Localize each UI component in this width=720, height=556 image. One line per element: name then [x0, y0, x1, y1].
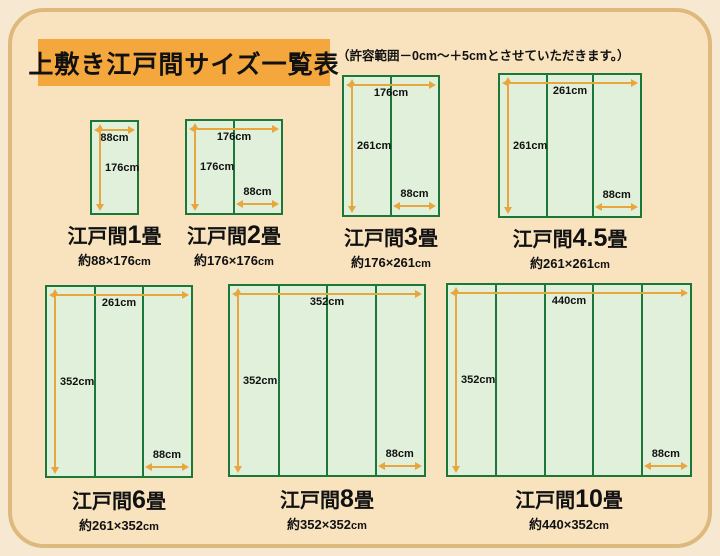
arrow-line	[350, 84, 432, 86]
diagram-size-value: 約261×261	[530, 256, 594, 271]
arrow-head-right-icon	[182, 463, 189, 471]
diagram-size-unit: cm	[351, 520, 367, 532]
diagram-size-value: 約176×176	[194, 253, 258, 268]
height-dimension-label: 176cm	[105, 162, 139, 174]
arrow-line	[507, 81, 509, 210]
tatami-diagram-2jo: 176cm176cm88cm	[185, 119, 283, 215]
arrow-line	[237, 292, 239, 469]
tatami-mat: 352cm352cm88cm	[228, 284, 426, 477]
diagram-name-number: 1	[128, 221, 142, 249]
mat-divider	[544, 285, 546, 475]
strip-dimension-label: 88cm	[236, 186, 279, 198]
height-dimension-label: 176cm	[200, 161, 234, 173]
arrow-line	[454, 292, 684, 294]
diagram-name: 江戸間6畳	[72, 487, 166, 513]
size-chart-page: 上敷き江戸間サイズ一覧表 （許容範囲－0cm～＋5cmとさせていただきます。） …	[0, 0, 720, 556]
diagram-name-suffix: 畳	[603, 490, 623, 512]
diagram-name-prefix: 江戸間	[515, 490, 575, 512]
tatami-diagram-4-5jo: 261cm261cm88cm	[498, 73, 642, 218]
diagram-size: 約88×176cm	[68, 250, 162, 269]
strip-dimension-label: 88cm	[145, 449, 189, 461]
tatami-mat: 176cm176cm88cm	[185, 119, 283, 215]
width-dimension-label: 352cm	[230, 296, 424, 308]
diagram-size-unit: cm	[594, 259, 610, 271]
diagram-size-unit: cm	[593, 520, 609, 532]
diagram-name: 江戸間8畳	[280, 486, 374, 512]
diagram-name-prefix: 江戸間	[513, 229, 573, 251]
diagram-caption: 江戸間6畳約261×352cm	[72, 487, 166, 534]
arrow-line	[599, 206, 634, 208]
height-arrow	[348, 79, 356, 213]
tatami-mat: 176cm261cm88cm	[342, 75, 440, 217]
arrow-line	[648, 465, 684, 467]
diagram-name-suffix: 畳	[607, 229, 627, 251]
diagram-name-number: 8	[340, 485, 354, 513]
width-dimension-label: 440cm	[448, 295, 690, 307]
arrow-head-up-icon	[234, 288, 242, 295]
arrow-line	[382, 465, 419, 467]
diagram-size: 約440×352cm	[515, 514, 623, 533]
arrow-head-left-icon	[595, 203, 602, 211]
tatami-diagram-1jo: 88cm176cm	[90, 120, 139, 215]
diagram-name: 江戸間10畳	[515, 486, 623, 512]
arrow-head-right-icon	[429, 202, 436, 210]
diagram-name-prefix: 江戸間	[187, 226, 247, 248]
tatami-diagram-6jo: 261cm352cm88cm	[45, 285, 193, 478]
arrow-head-up-icon	[96, 124, 104, 131]
arrow-head-right-icon	[681, 462, 688, 470]
height-dimension-label: 261cm	[513, 140, 547, 152]
diagram-name: 江戸間2畳	[187, 222, 281, 248]
diagram-caption: 江戸間10畳約440×352cm	[515, 486, 623, 533]
tatami-diagram-10jo: 440cm352cm88cm	[446, 283, 692, 477]
arrow-head-left-icon	[236, 200, 243, 208]
arrow-head-down-icon	[452, 466, 460, 473]
mat-divider	[326, 286, 328, 475]
arrow-head-right-icon	[272, 200, 279, 208]
diagram-caption: 江戸間8畳約352×352cm	[280, 486, 374, 533]
arrow-head-up-icon	[348, 79, 356, 86]
arrow-head-down-icon	[504, 207, 512, 214]
mat-divider	[142, 287, 144, 476]
diagram-name-prefix: 江戸間	[68, 226, 128, 248]
height-arrow	[51, 289, 59, 474]
strip-width-arrow	[393, 202, 436, 210]
arrow-line	[351, 83, 353, 209]
diagram-name: 江戸間3畳	[344, 224, 438, 250]
arrow-line	[455, 291, 457, 469]
arrow-head-left-icon	[393, 202, 400, 210]
mat-divider	[495, 285, 497, 475]
diagram-name-number: 2	[247, 221, 261, 249]
diagram-size-value: 約352×352	[287, 517, 351, 532]
arrow-head-down-icon	[51, 467, 59, 474]
height-dimension-label: 352cm	[461, 374, 495, 386]
diagram-caption: 江戸間2畳約176×176cm	[187, 222, 281, 269]
diagram-size-unit: cm	[143, 521, 159, 533]
arrow-head-down-icon	[234, 466, 242, 473]
height-dimension-label: 352cm	[60, 376, 94, 388]
arrow-head-down-icon	[191, 204, 199, 211]
mat-divider	[641, 285, 643, 475]
diagram-size-value: 約261×352	[79, 518, 143, 533]
tatami-diagram-8jo: 352cm352cm88cm	[228, 284, 426, 477]
arrow-line	[240, 203, 275, 205]
diagram-size-value: 約440×352	[529, 517, 593, 532]
diagram-size: 約261×352cm	[72, 515, 166, 534]
diagram-size-value: 約176×261	[351, 255, 415, 270]
arrow-line	[194, 127, 196, 207]
strip-dimension-label: 88cm	[393, 188, 436, 200]
height-arrow	[96, 124, 104, 211]
height-arrow	[452, 287, 460, 473]
diagram-name-prefix: 江戸間	[280, 490, 340, 512]
diagram-name-suffix: 畳	[354, 490, 374, 512]
arrow-line	[99, 128, 101, 207]
tolerance-note: （許容範囲－0cm～＋5cmとさせていただきます。）	[337, 45, 630, 64]
diagram-caption: 江戸間4.5畳約261×261cm	[513, 225, 628, 272]
mat-divider	[375, 286, 377, 475]
arrow-head-up-icon	[504, 77, 512, 84]
arrow-line	[236, 293, 418, 295]
arrow-head-left-icon	[644, 462, 651, 470]
arrow-head-down-icon	[348, 206, 356, 213]
diagram-name-prefix: 江戸間	[344, 228, 404, 250]
diagram-name-number: 10	[575, 485, 603, 513]
mat-divider	[592, 285, 594, 475]
strip-dimension-label: 88cm	[378, 448, 423, 460]
strip-dimension-label: 88cm	[595, 189, 638, 201]
diagram-name-suffix: 畳	[418, 228, 438, 250]
arrow-line	[193, 128, 275, 130]
diagram-name-number: 4.5	[573, 224, 608, 252]
diagram-caption: 江戸間1畳約88×176cm	[68, 222, 162, 269]
diagram-size: 約176×261cm	[344, 252, 438, 271]
width-dimension-label: 261cm	[500, 85, 640, 97]
diagram-caption: 江戸間3畳約176×261cm	[344, 224, 438, 271]
diagram-name-prefix: 江戸間	[72, 491, 132, 513]
width-dimension-label: 176cm	[344, 87, 438, 99]
tatami-mat: 440cm352cm88cm	[446, 283, 692, 477]
width-dimension-label: 261cm	[47, 297, 191, 309]
arrow-head-right-icon	[631, 203, 638, 211]
arrow-head-left-icon	[145, 463, 152, 471]
tatami-mat: 261cm261cm88cm	[498, 73, 642, 218]
diagram-name-suffix: 畳	[146, 491, 166, 513]
diagram-name-suffix: 畳	[261, 226, 281, 248]
diagram-size-unit: cm	[415, 258, 431, 270]
tatami-mat: 261cm352cm88cm	[45, 285, 193, 478]
diagram-size: 約176×176cm	[187, 250, 281, 269]
diagram-name-number: 6	[132, 486, 146, 514]
arrow-line	[54, 293, 56, 470]
diagram-size-unit: cm	[135, 256, 151, 268]
arrow-head-left-icon	[378, 462, 385, 470]
diagram-name-number: 3	[404, 223, 418, 251]
height-arrow	[191, 123, 199, 211]
strip-width-arrow	[145, 463, 189, 471]
arrow-head-up-icon	[51, 289, 59, 296]
strip-width-arrow	[236, 200, 279, 208]
height-arrow	[504, 77, 512, 214]
diagram-name: 江戸間4.5畳	[513, 225, 628, 251]
arrow-line	[149, 466, 185, 468]
arrow-head-up-icon	[452, 287, 460, 294]
arrow-head-down-icon	[96, 204, 104, 211]
arrow-line	[397, 205, 432, 207]
height-dimension-label: 261cm	[357, 140, 391, 152]
height-dimension-label: 352cm	[243, 375, 277, 387]
tatami-mat: 88cm176cm	[90, 120, 139, 215]
page-title: 上敷き江戸間サイズ一覧表	[38, 39, 330, 86]
diagram-name: 江戸間1畳	[68, 222, 162, 248]
arrow-head-up-icon	[191, 123, 199, 130]
arrow-head-right-icon	[415, 462, 422, 470]
diagram-size: 約352×352cm	[280, 514, 374, 533]
tatami-diagram-3jo: 176cm261cm88cm	[342, 75, 440, 217]
diagram-size-unit: cm	[258, 256, 274, 268]
diagram-size-value: 約88×176	[78, 253, 135, 268]
strip-width-arrow	[595, 203, 638, 211]
diagram-name-suffix: 畳	[141, 226, 161, 248]
strip-width-arrow	[378, 462, 423, 470]
strip-width-arrow	[644, 462, 688, 470]
mat-divider	[278, 286, 280, 475]
arrow-line	[506, 82, 634, 84]
mat-divider	[94, 287, 96, 476]
strip-dimension-label: 88cm	[644, 448, 688, 460]
height-arrow	[234, 288, 242, 473]
width-dimension-label: 176cm	[187, 131, 281, 143]
arrow-line	[53, 294, 185, 296]
diagram-size: 約261×261cm	[513, 253, 628, 272]
